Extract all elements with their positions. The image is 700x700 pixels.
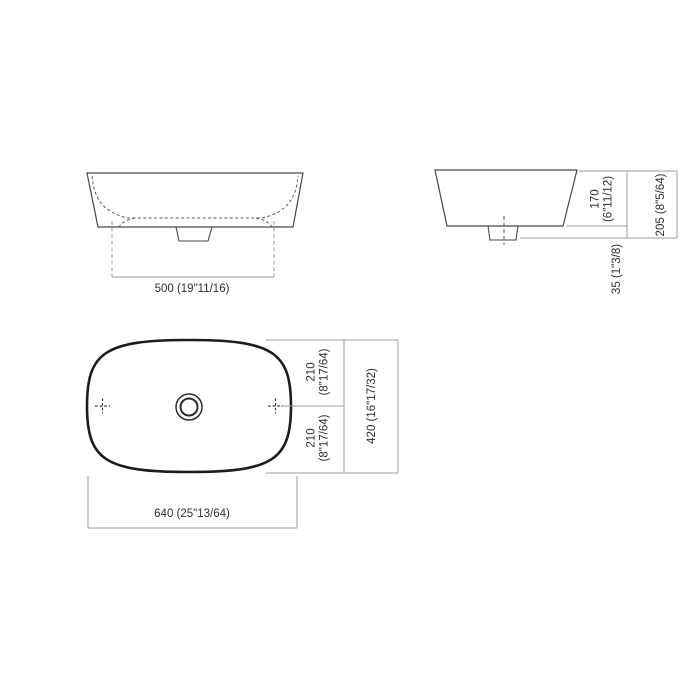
plan-view	[87, 340, 398, 528]
plan-upper-half-depth-dimension-label: 210 (8"17/64)	[306, 349, 331, 396]
plan-lower-half-depth-dimension-label: 210 (8"17/64)	[306, 415, 331, 462]
front-view-drain-outline	[176, 227, 212, 241]
side-basin-height-value: 170	[590, 176, 603, 222]
side-view	[435, 170, 677, 245]
drawing-linework	[0, 0, 700, 700]
plan-lower-half-depth-value: 210	[306, 415, 319, 462]
side-base-height-dimension-label: 35 (1"3/8)	[611, 244, 624, 294]
plan-view-basin-outline	[87, 340, 291, 472]
side-view-outline	[435, 170, 577, 226]
side-basin-height-dimension-label: 170 (6"11/12)	[590, 176, 615, 222]
front-width-dimension-label: 500 (19"11/16)	[155, 283, 230, 296]
plan-upper-half-depth-value: 210	[306, 349, 319, 396]
plan-total-width-dimension-label: 640 (25"13/64)	[154, 508, 230, 521]
technical-drawing-sheet: 500 (19"11/16) 170 (6"11/12) 205 (8"5/64…	[0, 0, 700, 700]
side-view-drain-outline	[488, 226, 518, 240]
side-total-height-dimension-label: 205 (8"5/64)	[655, 174, 668, 237]
front-view	[87, 173, 303, 277]
plan-total-depth-dimension-label: 420 (16"17/32)	[366, 368, 379, 444]
plan-lower-half-depth-imperial: (8"17/64)	[318, 415, 331, 462]
side-basin-height-imperial: (6"11/12)	[602, 176, 615, 222]
plan-upper-half-depth-imperial: (8"17/64)	[318, 349, 331, 396]
front-view-outline	[87, 173, 303, 227]
